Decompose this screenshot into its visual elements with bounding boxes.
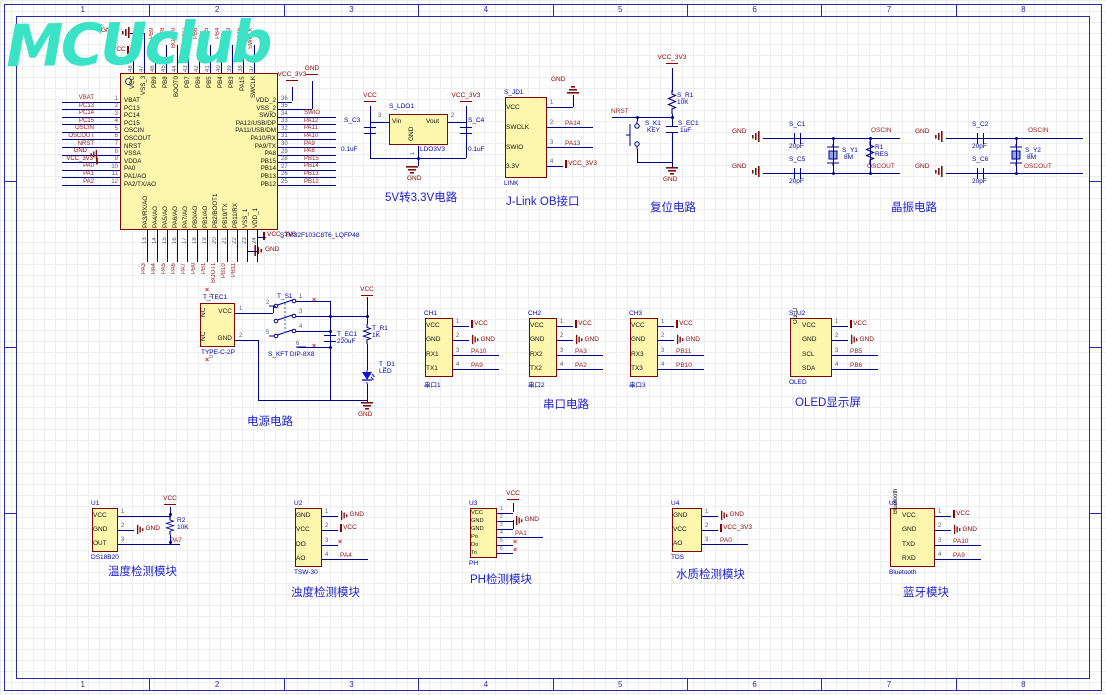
net-label: PA11 [304,125,318,131]
oscin-net-label: OSCIN [1028,128,1049,135]
wire [832,340,848,341]
gnd-symbol [935,166,943,177]
cap-value: 0.1uF [468,147,485,154]
net-area: GND [136,524,160,535]
pin-number: 3 [115,111,118,117]
mcu-pin-name-col: SWCLK [249,76,260,114]
wire [312,81,313,109]
pin-number: 13 [142,232,148,244]
wire [370,122,389,123]
gnd-symbol [341,511,348,520]
pin-number: 3 [705,537,708,543]
section-title: PH检测模块 [470,571,532,587]
mcu-pin-row[interactable]: 32PA11 [278,127,368,135]
mcu-pin-name: PA6/AO [173,186,179,228]
net-area: PA2 [575,363,587,370]
section-title: J-Link OB接口 [506,193,580,209]
pin-number: 3 [299,309,302,315]
gnd-symbol [752,131,760,142]
pin-number: 4 [325,552,328,558]
mcu-pin-row[interactable]: 35GND [278,105,368,113]
mcu-top-pin-names: VCCVSS_3PB9PB8BOOT0PB7PB6PB5PB4PB3PA15SW… [128,76,260,114]
mcu-pin-name: PB2/BOOT1 [213,186,219,228]
junction-dot [329,315,332,318]
wire [367,297,368,316]
gnd-symbol [576,335,583,344]
mcu-pin-name-col: PB2/BOOT1 [212,186,222,228]
gnd-net-label: GND [663,177,677,184]
mcu-pin-name: PA1/AO [124,173,184,181]
pin-number: 1 [500,507,503,512]
net-area: PA10 [471,349,486,356]
pin-row[interactable]: 1 [118,509,228,523]
wire [278,185,336,186]
net-label: BOOT1 [211,263,217,285]
net-label: PB1 [201,263,207,285]
net-label: PA2 [83,179,94,185]
net-area: GND [676,334,700,345]
mcu-pin-row[interactable]: 25PB12 [278,181,368,189]
pin-number: 4 [299,324,302,330]
pin-row[interactable]: 2VCC_3V3 [702,523,812,537]
pin-row[interactable]: 4PA9 [935,552,1045,566]
net-label: PA13 [565,141,580,148]
power-bar [565,160,567,168]
wire [1016,138,1017,173]
pin-number: 33 [281,118,288,124]
pin-number: 20 [212,232,218,244]
pin-number: 21 [222,232,228,244]
gnd-symbol [567,86,579,94]
gnd-net-label: GND [407,176,421,183]
section-title: 浊度检测模块 [291,584,360,600]
net-label: PA9 [471,363,483,370]
led-value: LED [379,369,392,376]
wire [453,326,469,327]
pin-row[interactable]: 2GND [658,333,768,347]
net-label: PC14 [79,110,94,116]
pin-row[interactable]: 1VCC [658,319,768,333]
net-label: NRST [78,141,94,147]
gnd-symbol [516,516,523,525]
net-label: PA12 [304,118,318,124]
power-bar [471,320,473,328]
wire [118,516,170,517]
mcu-pin-col[interactable]: 24 [252,230,262,286]
net-label: PB10 [221,263,227,285]
gnd-symbol [361,402,373,410]
net-label: GND [585,337,599,344]
mcu-pin-name-col: PB4 [216,76,227,114]
net-area: VCC [340,524,357,532]
ldo-pin-vout: Vout [426,119,439,126]
net-area: VCC [575,320,592,328]
mcu-pin-col[interactable]: 22PB11 [232,230,242,286]
mcu-pin-name: PA7/AO [183,186,189,228]
wire [870,138,871,173]
pin-row[interactable]: 3PA10 [935,538,1045,552]
pin-number: 5 [266,330,269,336]
wire [672,162,673,167]
section-title: 晶振电路 [891,199,937,215]
mcu-pin-name: PA4/AO [153,186,159,228]
wire [637,149,638,162]
net-label: VBAT [79,95,94,101]
pin-number: 35 [281,103,288,109]
net-area: × [513,547,517,554]
net-area: PA13 [565,141,580,148]
wire [235,313,273,314]
pin-number: 2 [661,333,664,339]
net-area: VCC_3V3 [565,160,597,168]
mcu-pin-name: PB6 [196,76,202,114]
pin-rows: 12GND3PA7 [118,509,228,551]
junction-dot [329,330,332,333]
wire [497,553,513,554]
crystal-value: 8M [844,155,853,162]
vcc3v3-power-port: VCC_3V3 [444,93,488,102]
pin-row[interactable]: 6× [497,549,607,557]
pin-row[interactable]: 1VCC [832,319,942,333]
net-label: VCC [578,321,592,328]
pin-rows: 1VCC2GND3PB54PB6 [832,319,942,376]
net-label: PA9 [953,553,965,560]
pin-rows: 12PA143PA134VCC_3V3 [547,98,657,177]
mcu-bottom-pin-names: PA3/RX/AOPA4/AOPA5/AOPA6/AOPA7/AOPB0/AOP… [142,186,262,228]
gnd-net-label: GND [732,164,746,171]
pin-row[interactable]: 3× [322,538,432,552]
gnd-symbol [954,525,961,534]
pin-row[interactable]: 3PA7 [118,537,228,551]
oscin-net-label: OSCIN [871,128,892,135]
mcu-pin-row[interactable]: 27PB14 [278,165,368,173]
net-label: GND [146,526,160,533]
power-bar [850,320,852,328]
pin-number: 11 [112,171,118,177]
mcu-pin-name: BOOT0 [174,76,180,114]
mcu-pin-name-col: PA6/AO [172,186,182,228]
mcu-pin-name: PA11/USB/DM [198,127,276,135]
vcc3v3-net-label: VCC_3V3 [267,232,296,239]
net-label: PB11 [676,349,691,356]
pin-number: 3 [938,538,941,544]
net-area: PA10 [953,539,968,546]
net-area: PA1 [515,531,527,538]
cap-value: 20pF [972,144,987,151]
net-label: PA9 [304,141,315,147]
mcu-pin-row[interactable]: 31PA10 [278,135,368,143]
gnd-power-port: GND [290,66,334,75]
mcu-pin-name: PB13 [198,173,276,181]
net-label: PB5 [850,349,862,356]
no-connect-mark: × [513,539,517,546]
wire [118,530,134,531]
pin-number: 2 [239,333,242,339]
net-label: PB11 [231,263,237,285]
mcu-pin-name-col: PA15 [238,76,249,114]
net-label: VCC_3V3 [568,161,597,168]
pin-number: 7 [115,141,118,147]
mcu-pin-name: PA12/USB/DP [198,120,276,128]
pin-number: 1 [410,147,416,155]
net-area: GND [850,334,874,345]
resistor-value: 1K [372,333,380,340]
pin-row[interactable]: 1GND [322,509,432,523]
net-label: GND [481,337,495,344]
net-label: PB0 [191,263,197,285]
pin-number: 3 [500,523,503,528]
mcu-pin-row[interactable]: 26PB13 [278,173,368,181]
mcu-pin-name-col: VCC [128,76,139,114]
gnd-symbol [677,335,684,344]
net-label: PC15 [79,118,94,124]
pin-number: 0 [209,289,215,297]
pin-row[interactable]: 3PA0 [702,537,812,551]
pin-number: 4 [550,159,553,165]
pin-number: 2 [115,103,118,109]
wire [547,107,563,108]
net-area: PB11 [676,349,691,356]
net-area: × [338,539,342,546]
pin-row[interactable]: 3PB5 [832,348,942,362]
pin-number: 18 [192,232,198,244]
net-area: PA14 [565,121,580,128]
mcu-left-pins: VBAT1PC132PC143PC154OSCIN5OSCOUT6NRST7GN… [60,97,120,188]
net-label: GND [963,527,977,534]
pin-row[interactable]: 4PB10 [658,362,768,376]
component-part-label: 串口3 [629,379,646,389]
net-label: PA0 [83,163,94,169]
wire [258,400,368,401]
wire [292,87,293,101]
mcu-pin-name-col: PB3 [227,76,238,114]
component-part-label: DS18B20 [91,554,119,561]
pin-row[interactable]: 1GND [702,509,812,523]
pin-number: 27 [281,164,288,170]
wire [273,306,274,313]
pin-number: 15 [162,232,168,244]
cap-designator: S_C2 [972,122,988,129]
net-label: PA14 [565,121,580,128]
wire [322,545,338,546]
pin-row[interactable]: 2VCC [322,523,432,537]
net-label: PB13 [304,171,319,177]
junction-dot [169,541,172,544]
wire [547,166,563,167]
pin-number: 1 [325,509,328,515]
pin-number: 1 [115,96,118,102]
mcu-pin-name: PA5/AO [163,186,169,228]
gnd-symbol [721,511,728,520]
component-part-label: 串口2 [528,379,545,389]
pin-row[interactable]: 2GND [118,523,228,537]
power-bar [340,524,342,532]
net-area: GND [340,510,364,521]
ldo-designator: S_LDO1 [389,104,414,111]
net-label: PA7 [170,538,182,545]
no-erc-mark: × [312,343,316,350]
pin-number: 3 [325,538,328,544]
typec-pin-vcc: VCC [203,309,232,316]
pin-number: 4 [835,362,838,368]
pin-number: 12 [111,179,118,185]
mcu-pin-name: PB10/TX [223,186,229,228]
net-area: GND [720,510,744,521]
wire [563,107,573,108]
pin-number: 3 [456,348,459,354]
pin-row[interactable]: 2GND [832,333,942,347]
ldo-part-label: LDO3V3 [420,147,445,154]
mcu-pin-name: PA15 [240,76,246,114]
pin-row[interactable]: 4PA4 [322,552,432,566]
wire [557,340,573,341]
wire [658,326,674,327]
net-area: PA7 [170,538,182,545]
capacitor-symbol[interactable] [666,126,678,133]
net-label: VCC_3V3 [66,156,93,162]
pin-number: 1 [938,509,941,515]
wire [832,326,848,327]
net-label: PB14 [304,163,319,169]
pin-row[interactable]: 3PB11 [658,348,768,362]
net-label: VCC [474,321,488,328]
schematic-sheet: { "sheet":{"zones":["1","2","3","4","5",… [0,0,1106,695]
pin-row[interactable]: 1VCC [935,509,1045,523]
mcu-pin-name: PA3/RX/AO [143,186,149,228]
gnd-net-label: GND [265,247,279,254]
wire [513,503,514,512]
section-title: 复位电路 [650,199,696,215]
gnd-symbol [666,167,678,175]
net-label: PA3 [575,349,587,356]
junction-dot [417,157,420,160]
wire [557,326,573,327]
pin-number: 22 [232,232,238,244]
pin-number: 5 [115,126,118,132]
wire [612,117,672,118]
cap-designator: S_C4 [468,118,484,125]
wire [833,138,834,173]
mcu-pin-name-col: PB0/AO [192,186,202,228]
mcu-pin-name: PB5 [207,76,213,114]
wire [702,516,718,517]
mcu-pin-name-col: PB5 [205,76,216,114]
pin-number: 2 [705,523,708,529]
wire [296,316,367,317]
gnd-symbol [137,525,144,534]
mcu-pin-name: PB9 [152,76,158,114]
pin-number: 3 [550,140,553,146]
wire [235,340,258,341]
net-area: PB5 [850,349,862,356]
cap-value: 20pF [972,179,987,186]
pin-number: 32 [281,126,288,132]
cap-designator: S_C6 [972,157,988,164]
wire [247,251,257,252]
pin-number: 30 [281,141,288,147]
pin-row[interactable]: 3PA13 [547,138,657,158]
junction-dot [169,513,172,516]
pin-number: 2 [550,120,553,126]
net-label: PC13 [79,103,94,109]
switch-symbol[interactable] [266,295,310,351]
component-part-label: LINK [504,180,518,187]
wire [702,530,718,531]
mcu-pin-name: PB14 [198,165,276,173]
net-label: PA5 [161,263,167,285]
mcu-pin-row[interactable]: 28PB15 [278,158,368,166]
mcu-pin-name-col: PA7/AO [182,186,192,228]
cap-value: 220uF [337,339,355,346]
led-symbol[interactable] [359,370,375,384]
mcu-pin-row[interactable]: PA212 [60,181,120,189]
net-label: PB12 [304,179,319,185]
pin-row[interactable]: 4VCC_3V3 [547,157,657,177]
gnd-net-label: GND [915,164,929,171]
vcc-power-port: VCC [148,496,192,505]
mcu-pin-col[interactable]: 23 [242,230,252,286]
gnd-net-label: GND [915,129,929,136]
pin-number: 1 [456,319,459,325]
mcu-pin-name-col: VDD_1 [252,186,262,228]
wire [935,516,951,517]
mcu-pin-name: VSSA [124,150,184,158]
pin-row[interactable]: 2PA14 [547,118,657,138]
net-label: PA1 [83,171,94,177]
pin-row[interactable]: 4PB6 [832,362,942,376]
mcu-pin-name-col: PA3/RX/AO [142,186,152,228]
wire [935,530,951,531]
net-label: PA10 [953,539,968,546]
vcc3v3-power-port: VCC_3V3 [650,55,694,64]
wire [62,147,120,148]
mcu-pin-name-col: PB9 [150,76,161,114]
pin-number: 23 [242,232,248,244]
pin-number: 4 [456,362,459,368]
junction-dot [869,172,872,175]
cap-value: 0.1uF [341,147,358,154]
net-label: OSCIN [75,125,94,131]
gnd-net-label: GND [551,77,565,84]
net-label: PA1 [515,531,527,538]
net-area: GND [471,334,495,345]
power-bar [720,524,722,532]
mcu-bottom-pins: 13PA314PA415PA516PA617PA718PB019PB120BOO… [142,230,262,286]
net-label: GND [350,512,364,519]
component-designator: CH3 [629,310,642,317]
component-part-label: TSW-30 [294,569,318,576]
resistor-value: RES [875,152,888,159]
gnd-symbol [851,335,858,344]
mcu-pin-name: VSS_1 [243,186,249,228]
net-label: PA2 [575,363,587,370]
vcc-power-port: VCC [491,491,535,500]
net-label: GND [686,337,700,344]
junction-dot [636,116,639,119]
pin-number: 36 [281,96,288,102]
mcu-pin-name: PC15 [124,120,184,128]
net-label: PB15 [304,156,319,162]
mcu-pin-name: PB0/AO [193,186,199,228]
pin-row[interactable]: 2GND [935,523,1045,537]
gnd-net-label: GND [732,129,746,136]
net-area: GND [953,524,977,535]
pin-number: 19 [202,232,208,244]
component-designator: U1 [91,500,99,507]
mcu-pin-name-col: BOOT0 [172,76,183,114]
gnd-symbol [472,335,479,344]
wire [367,384,368,402]
